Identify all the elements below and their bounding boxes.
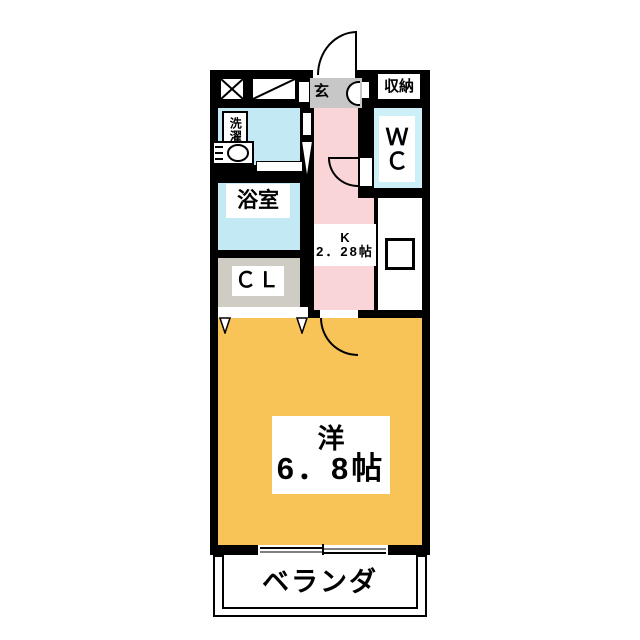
bathroom-label: 浴室 [226, 184, 290, 218]
folding-door-wedge-icon [300, 140, 314, 182]
wc-label-line1: Ｗ [386, 125, 409, 149]
wc-label: Ｗ Ｃ [379, 116, 415, 182]
entrance-door-panel [355, 31, 357, 75]
kitchen-label-line2: 2．28帖 [316, 245, 374, 259]
closet-door-opening [218, 307, 308, 318]
kitchen-label: K 2．28帖 [314, 224, 376, 266]
kitchen-sink-icon [385, 238, 415, 270]
room-top-wall-left-seg [308, 310, 320, 318]
closet-label: ＣＬ [232, 266, 284, 296]
pipe-shaft-icon [219, 77, 245, 101]
entrance-label: 玄 [314, 80, 329, 101]
room-label-line2: 6．8帖 [277, 453, 385, 486]
entry-side-gap [299, 82, 309, 102]
floor-plan: 玄 収納 洗濯 浴室 ＣＬ Ｗ Ｃ [0, 0, 640, 640]
entrance-door-arc-icon [317, 31, 357, 75]
kitchen-label-line1: K [340, 231, 349, 245]
room-label-line1: 洋 [318, 425, 345, 453]
shoe-cabinet-icon [251, 77, 297, 101]
wc-bottom-wall [358, 188, 430, 198]
washbasin-icon [212, 141, 254, 165]
storage-door-gap [361, 82, 369, 98]
wc-label-line2: Ｃ [386, 149, 409, 173]
bathroom-door [256, 161, 303, 172]
wc-door-opening [360, 158, 372, 186]
right-wall [422, 70, 430, 555]
storage-label: 収納 [376, 72, 422, 101]
room-top-wall-right-seg [358, 310, 422, 318]
folding-door-panel [301, 111, 313, 137]
veranda-label: ベランダ [240, 562, 400, 602]
bathroom-closet-wall [218, 250, 300, 258]
closet-door-wedge-left-icon [219, 317, 231, 334]
closet-door-wedge-right-icon [296, 317, 308, 334]
room-label: 洋 6．8帖 [272, 416, 390, 494]
